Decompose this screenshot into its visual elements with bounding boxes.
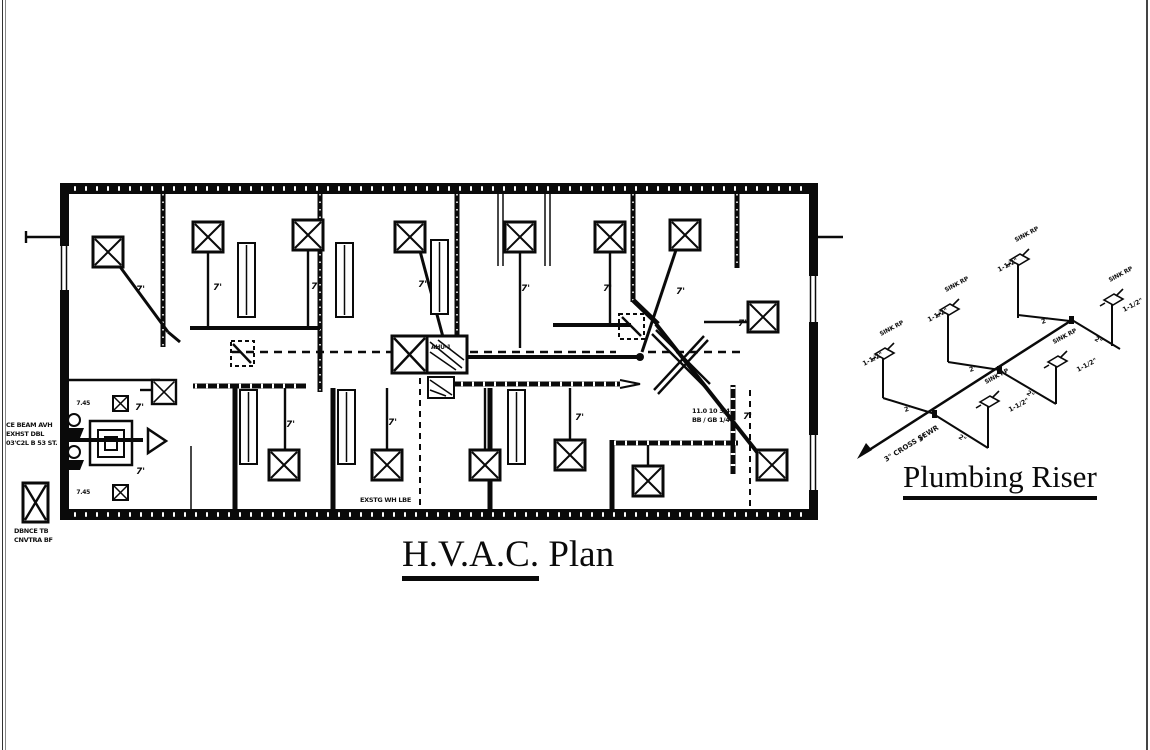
left-margin-note-3: 03'C2L B 53 ST.	[6, 439, 57, 447]
svg-text:SINK RP: SINK RP	[944, 275, 971, 294]
svg-text:1-1/2": 1-1/2"	[861, 350, 884, 367]
thermostat-upper	[113, 396, 128, 411]
svg-text:2": 2"	[1093, 335, 1104, 346]
svg-text:7': 7'	[676, 287, 685, 297]
svg-text:2": 2"	[903, 404, 913, 414]
window-left	[59, 246, 71, 290]
cad-drawing: AHU-1	[0, 0, 1150, 750]
damper-triangle	[148, 429, 166, 453]
svg-text:7': 7'	[136, 467, 145, 477]
diffuser	[670, 220, 700, 250]
louver-note-2: CNVTRA BF	[14, 536, 53, 544]
sewer-main-label: 3" CROSS SEWR	[883, 423, 941, 463]
svg-text:2": 2"	[968, 364, 978, 374]
hvac-plan-title: H.V.A.C. Plan	[402, 533, 614, 576]
diffuser	[269, 450, 299, 480]
svg-text:SINK RP: SINK RP	[879, 319, 906, 338]
louver-box	[23, 483, 48, 522]
unit-heater	[90, 421, 132, 465]
svg-text:2": 2"	[1040, 316, 1050, 326]
svg-text:7': 7'	[738, 319, 747, 329]
return-grille-dashed-left	[231, 341, 254, 366]
left-margin-note-1: CE BEAM AVH	[6, 421, 52, 429]
svg-text:7': 7'	[213, 283, 222, 293]
svg-text:SINK RP: SINK RP	[1014, 225, 1041, 244]
unit-tag-upper: 7.45	[76, 400, 90, 407]
svg-text:1-1/2": 1-1/2"	[1121, 296, 1144, 313]
mechanical-equipment: 7.45 7.45	[60, 396, 166, 500]
diffuser	[633, 466, 663, 496]
ahu-tag: AHU-1	[431, 344, 451, 351]
plumbing-fixture	[976, 391, 999, 408]
thermostat-lower	[113, 485, 128, 500]
air-handling-unit: AHU-1	[392, 336, 467, 398]
window-right-upper	[808, 276, 820, 322]
svg-text:7': 7'	[388, 418, 397, 428]
svg-text:1-1/2": 1-1/2"	[1075, 356, 1098, 373]
plumbing-fixture	[1044, 351, 1067, 368]
louver-note-1: DBNCE TB	[14, 527, 49, 535]
duct-note-2: BB / GB 1/4	[692, 416, 730, 424]
svg-text:7': 7'	[521, 284, 530, 294]
svg-text:7': 7'	[135, 403, 144, 413]
window-right-lower	[808, 435, 820, 490]
drawing-sheet: AHU-1	[0, 0, 1150, 750]
plumbing-fixture	[1100, 289, 1123, 306]
diffuser	[595, 222, 625, 252]
diffuser	[193, 222, 223, 252]
exterior-stub-left	[26, 231, 60, 243]
diffuser-small	[152, 380, 176, 404]
diffuser	[555, 440, 585, 470]
diffuser	[757, 450, 787, 480]
diffuser	[395, 222, 425, 252]
svg-text:SINK RP: SINK RP	[1108, 265, 1135, 284]
plumbing-riser-title: Plumbing Riser	[903, 459, 1097, 500]
duct-note-1: 11.0 10 3/4	[692, 407, 731, 415]
diffuser	[470, 450, 500, 480]
unit-tag-lower: 7.45	[76, 489, 90, 496]
plan-notes: CE BEAM AVH EXHST DBL 03'C2L B 53 ST. DB…	[6, 407, 731, 544]
left-margin-note-2: EXHST DBL	[6, 430, 44, 438]
plumbing-riser-diagram: SINK RP SINK RP SINK RP SINK RP SINK RP …	[857, 225, 1144, 464]
diffuser	[372, 450, 402, 480]
svg-text:7': 7'	[286, 420, 295, 430]
existing-note: EXSTG WH LBE	[360, 496, 411, 504]
svg-text:7': 7'	[311, 282, 320, 292]
diffuser	[93, 237, 123, 267]
svg-text:7': 7'	[743, 412, 752, 422]
svg-text:1-1/2": 1-1/2"	[926, 306, 949, 323]
diffuser	[505, 222, 535, 252]
hvac-plan-title-rest: Plan	[539, 534, 614, 575]
diffuser	[293, 220, 323, 250]
flow-arrowhead	[857, 443, 872, 459]
duct-damper-dot	[636, 353, 644, 361]
hvac-plan-title-underlined: H.V.A.C.	[402, 534, 539, 581]
svg-text:7': 7'	[575, 413, 584, 423]
diffuser	[748, 302, 778, 332]
svg-text:1-1/2": 1-1/2"	[1007, 396, 1030, 413]
svg-text:7': 7'	[136, 285, 145, 295]
svg-text:7': 7'	[418, 280, 427, 290]
svg-text:7': 7'	[603, 284, 612, 294]
svg-text:1-1/2": 1-1/2"	[996, 256, 1019, 273]
